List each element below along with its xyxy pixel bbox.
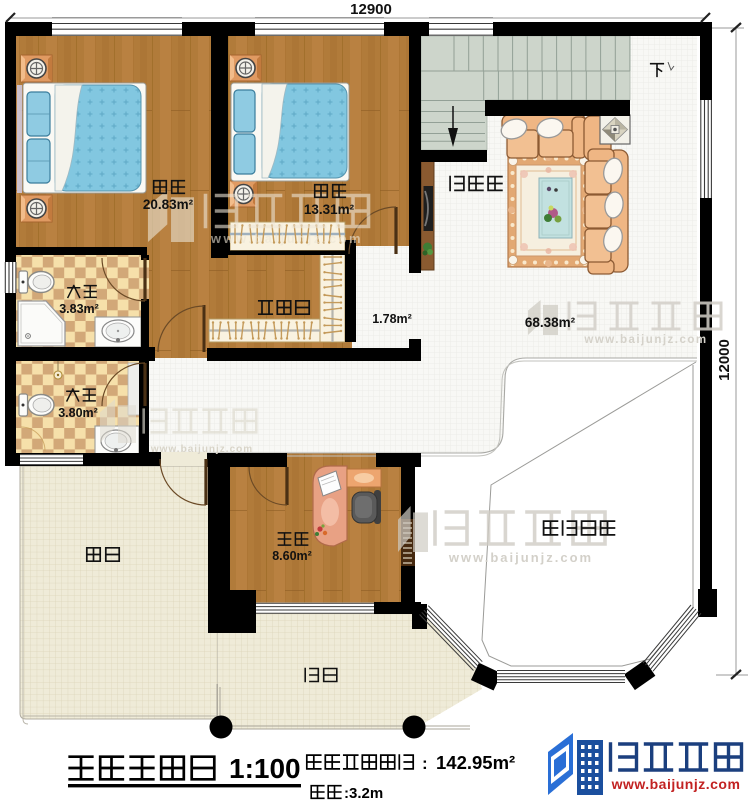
svg-text:www.baijunjz.com: www.baijunjz.com: [150, 444, 253, 455]
svg-text:20.83m²: 20.83m²: [143, 197, 194, 212]
svg-text::: :: [422, 754, 428, 773]
svg-text:3.80m²: 3.80m²: [58, 406, 98, 420]
svg-text:8.60m²: 8.60m²: [272, 549, 312, 563]
svg-text:www.baijunjz.com: www.baijunjz.com: [583, 334, 707, 346]
svg-text::3.2m: :3.2m: [344, 785, 383, 802]
svg-text:142.95m²: 142.95m²: [436, 752, 515, 773]
svg-text:www.baijunjz.com: www.baijunjz.com: [448, 550, 593, 565]
svg-text:www.baijunjz.com: www.baijunjz.com: [611, 776, 741, 792]
svg-text:1:100: 1:100: [229, 753, 301, 784]
svg-text:13.31m²: 13.31m²: [304, 202, 355, 217]
svg-text:1.78m²: 1.78m²: [372, 312, 412, 326]
svg-text:3.83m²: 3.83m²: [59, 302, 99, 316]
svg-text:www.baijunjz.com: www.baijunjz.com: [210, 231, 363, 246]
svg-text:12900: 12900: [350, 1, 392, 18]
svg-text:12000: 12000: [716, 339, 733, 381]
svg-text:68.38m²: 68.38m²: [525, 315, 576, 330]
